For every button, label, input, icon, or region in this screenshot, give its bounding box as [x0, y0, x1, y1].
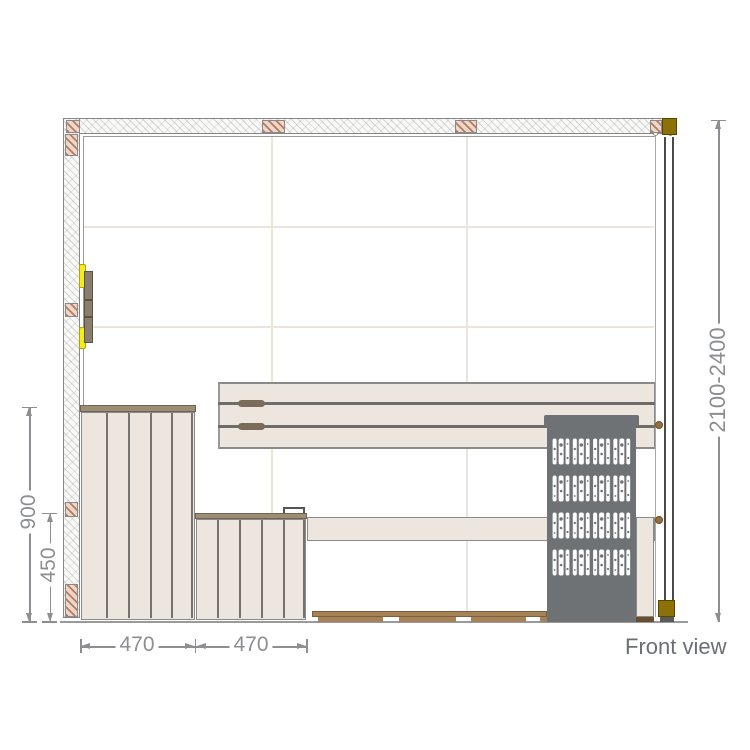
- glass-wall-inner-edge: [655, 136, 657, 617]
- upper-bench-plank-joint: [128, 413, 130, 618]
- upper-bench-plank-joint: [150, 413, 152, 618]
- door-hinge-bar-joint: [85, 316, 92, 318]
- wall-section-hatch-icon: [66, 120, 80, 133]
- lower-bench-plank-joint: [217, 520, 219, 618]
- backrest-handle: [238, 423, 265, 431]
- dim-label-overall-height: 2100-2400: [705, 323, 731, 436]
- floor-duckboard-foot: [540, 617, 547, 622]
- floor-duckboard-foot: [399, 617, 456, 622]
- wall-section-hatch-icon: [65, 502, 78, 517]
- lower-bench-bracket: [283, 507, 305, 509]
- dim-label-900: 900: [17, 490, 41, 533]
- dim-arrow: [81, 643, 90, 649]
- wall-fixing-dot: [655, 516, 663, 524]
- dim-arrow: [197, 643, 206, 649]
- ceiling-line: [84, 136, 655, 138]
- backrest-handle: [238, 400, 265, 408]
- lower-bench-front: [196, 519, 306, 620]
- wall-section-hatch-icon: [262, 120, 285, 133]
- dim-label-450: 450: [37, 543, 61, 586]
- dim-arrow: [47, 513, 53, 522]
- dim-arrow: [26, 613, 32, 622]
- glass-wall-base-pad: [660, 617, 674, 622]
- wall-section-hatch-icon: [65, 584, 78, 617]
- panel-seam-horizontal: [84, 326, 654, 328]
- wall-section-hatch-icon: [455, 120, 477, 133]
- lower-bench-plank-joint: [239, 520, 241, 618]
- upper-bench-front: [81, 412, 195, 620]
- lower-bench-plank-joint: [303, 520, 305, 618]
- lower-bench-plank-joint: [283, 520, 285, 618]
- upper-bench-plank-joint: [106, 413, 108, 618]
- glass-wall-base-block: [658, 600, 675, 617]
- lower-bench-plank-joint: [261, 520, 263, 618]
- floor-duckboard-foot: [318, 617, 383, 622]
- view-label: Front view: [625, 634, 726, 660]
- lower-bench-cap: [195, 513, 307, 519]
- dim-arrow: [715, 613, 721, 622]
- heater-lattice-icon: [551, 437, 632, 585]
- dim-arrow: [26, 407, 32, 416]
- dim-arrow: [185, 643, 194, 649]
- glass-pane-line: [664, 137, 667, 601]
- wall-section-hatch-icon: [65, 303, 78, 317]
- panel-seam-vertical: [466, 137, 468, 617]
- door-hinge-bar: [84, 271, 93, 343]
- upper-bench-plank-joint: [191, 413, 193, 618]
- wall-section-hatch-icon: [650, 120, 662, 133]
- top-wall: [63, 118, 677, 134]
- dim-arrow: [297, 643, 306, 649]
- sauna-front-view-drawing: 900 450 470 470 2100-2400 Front view: [0, 0, 750, 750]
- door-hinge-bar-joint: [85, 299, 92, 301]
- backrest-board-joint: [218, 402, 655, 405]
- panel-seam-horizontal: [84, 226, 654, 228]
- wall-fixing-dot: [655, 421, 663, 429]
- wall-section-hatch-icon: [65, 134, 78, 156]
- upper-bench-plank-joint: [171, 413, 173, 618]
- corner-post-icon: [662, 118, 677, 135]
- left-wall: [63, 118, 80, 618]
- dim-arrow: [47, 613, 53, 622]
- dim-label-470-upper-bench: 470: [115, 633, 158, 657]
- upper-bench-cap: [80, 405, 196, 412]
- bench-end-panel: [636, 517, 654, 617]
- glass-pane-line: [672, 137, 675, 601]
- dim-arrow: [715, 120, 721, 129]
- floor-duckboard-foot: [471, 617, 526, 622]
- dim-tick: [306, 639, 308, 653]
- dim-label-470-lower-bench: 470: [229, 633, 272, 657]
